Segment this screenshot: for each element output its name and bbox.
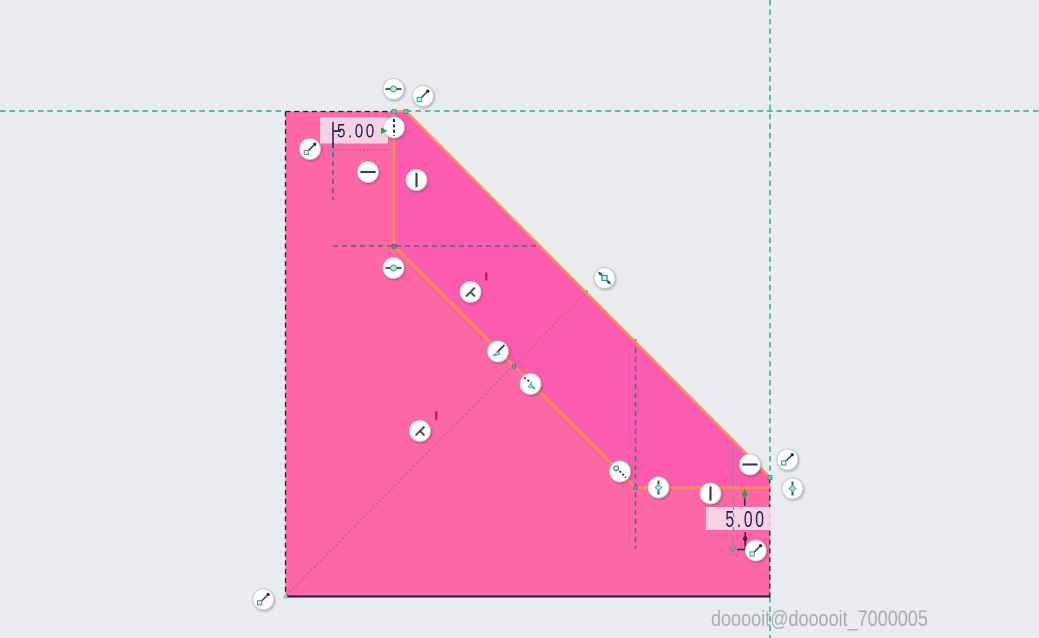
svg-text:5.00: 5.00 — [725, 507, 766, 533]
svg-text:dooooit@dooooit_7000005: dooooit@dooooit_7000005 — [711, 607, 928, 631]
svg-text:5.00: 5.00 — [337, 120, 377, 142]
